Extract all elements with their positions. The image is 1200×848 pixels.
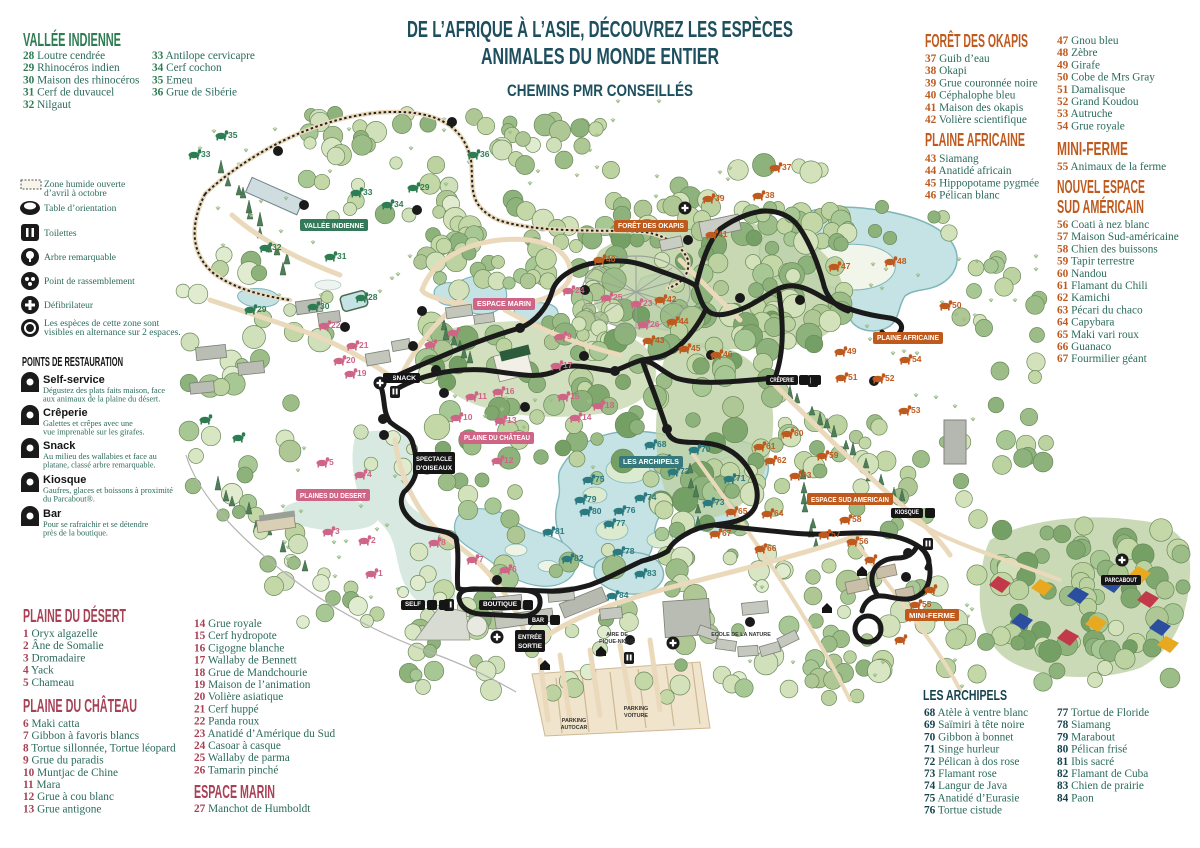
- svg-text:58: 58: [852, 514, 862, 524]
- svg-text:84: 84: [619, 590, 629, 600]
- svg-text:38: 38: [765, 190, 775, 200]
- svg-text:49 Girafe: 49 Girafe: [1057, 59, 1100, 71]
- svg-text:63 Pécari du chaco: 63 Pécari du chaco: [1057, 304, 1143, 316]
- svg-text:37 Guib d’eau: 37 Guib d’eau: [925, 53, 990, 65]
- svg-text:57: 57: [831, 529, 841, 539]
- svg-text:56: 56: [859, 536, 869, 546]
- svg-text:26: 26: [650, 319, 660, 329]
- svg-text:80 Pélican frisé: 80 Pélican frisé: [1057, 744, 1127, 756]
- svg-text:48 Zèbre: 48 Zèbre: [1057, 47, 1097, 59]
- svg-text:Snack: Snack: [43, 440, 76, 452]
- svg-text:45 Hippopotame pygmée: 45 Hippopotame pygmée: [925, 177, 1039, 189]
- svg-text:34: 34: [394, 199, 404, 209]
- svg-text:37: 37: [782, 162, 792, 172]
- svg-text:69 Saïmiri à tête noire: 69 Saïmiri à tête noire: [924, 719, 1024, 731]
- svg-text:36 Grue de Sibérie: 36 Grue de Sibérie: [152, 87, 237, 99]
- svg-text:NOUVEL ESPACE: NOUVEL ESPACE: [1057, 177, 1145, 197]
- svg-text:60: 60: [794, 428, 804, 438]
- svg-text:ANIMALES DU MONDE ENTIER: ANIMALES DU MONDE ENTIER: [481, 43, 719, 69]
- svg-text:9: 9: [567, 331, 572, 341]
- svg-text:5 Chameau: 5 Chameau: [23, 677, 74, 689]
- svg-text:ESPACE MARIN: ESPACE MARIN: [194, 782, 275, 802]
- svg-text:CRÊPERIE: CRÊPERIE: [770, 375, 794, 384]
- svg-text:7 Gibbon à favoris blancs: 7 Gibbon à favoris blancs: [23, 730, 139, 742]
- svg-text:68 Atèle à ventre blanc: 68 Atèle à ventre blanc: [924, 707, 1028, 719]
- svg-text:19: 19: [357, 368, 367, 378]
- svg-text:15: 15: [570, 391, 580, 401]
- svg-text:61 Flamant du Chili: 61 Flamant du Chili: [1057, 280, 1148, 292]
- svg-text:aux animaux de la plaine du dé: aux animaux de la plaine du désert.: [43, 395, 160, 404]
- svg-text:PLAINE AFRICAINE: PLAINE AFRICAINE: [925, 130, 1025, 150]
- svg-text:80: 80: [592, 506, 602, 516]
- svg-text:40: 40: [606, 254, 616, 264]
- svg-text:Point de rassemblement: Point de rassemblement: [44, 277, 135, 287]
- svg-text:78: 78: [625, 546, 635, 556]
- svg-text:47: 47: [841, 261, 851, 271]
- svg-text:74 Langur de Java: 74 Langur de Java: [924, 780, 1007, 792]
- svg-text:SPECTACLE: SPECTACLE: [416, 456, 453, 463]
- svg-text:D'OISEAUX: D'OISEAUX: [416, 465, 453, 472]
- svg-text:33 Antilope cervicapre: 33 Antilope cervicapre: [152, 50, 255, 62]
- svg-text:77: 77: [616, 518, 626, 528]
- svg-text:13 Grue antigone: 13 Grue antigone: [23, 803, 101, 815]
- svg-text:PLAINES DU DESERT: PLAINES DU DESERT: [300, 491, 366, 500]
- svg-text:50: 50: [952, 300, 962, 310]
- svg-text:84 Paon: 84 Paon: [1057, 792, 1094, 804]
- svg-text:d’avril à octobre: d’avril à octobre: [44, 189, 107, 199]
- svg-text:22 Panda roux: 22 Panda roux: [194, 716, 260, 728]
- svg-text:32: 32: [272, 242, 282, 252]
- svg-text:Crêperie: Crêperie: [43, 407, 88, 419]
- svg-text:24: 24: [575, 285, 585, 295]
- svg-text:62: 62: [777, 455, 787, 465]
- svg-text:65 Maki vari roux: 65 Maki vari roux: [1057, 329, 1139, 341]
- svg-text:Toilettes: Toilettes: [44, 229, 77, 239]
- svg-text:Défibrilateur: Défibrilateur: [44, 300, 94, 311]
- svg-text:23 Anatidé d’Amérique du Sud: 23 Anatidé d’Amérique du Sud: [194, 728, 336, 740]
- svg-text:29: 29: [257, 304, 267, 314]
- svg-text:79: 79: [587, 494, 597, 504]
- svg-text:platane, classé arbre remarqua: platane, classé arbre remarquable.: [43, 461, 156, 470]
- svg-text:14 Grue royale: 14 Grue royale: [194, 618, 262, 630]
- svg-text:31 Cerf de duvaucel: 31 Cerf de duvaucel: [23, 87, 114, 99]
- svg-text:52: 52: [885, 373, 895, 383]
- svg-text:67 Fourmilier géant: 67 Fourmilier géant: [1057, 353, 1148, 365]
- svg-text:7: 7: [479, 554, 484, 564]
- svg-text:8 Tortue sillonnée, Tortue léo: 8 Tortue sillonnée, Tortue léopard: [23, 742, 176, 754]
- svg-text:ECOLE DE LA NATURE: ECOLE DE LA NATURE: [711, 632, 771, 638]
- svg-text:SORTIE: SORTIE: [518, 643, 542, 650]
- svg-text:27 Manchot de Humboldt: 27 Manchot de Humboldt: [194, 803, 311, 815]
- svg-text:47 Gnou bleu: 47 Gnou bleu: [1057, 35, 1119, 47]
- svg-text:71: 71: [736, 473, 746, 483]
- svg-text:58 Chien des buissons: 58 Chien des buissons: [1057, 243, 1158, 255]
- svg-text:35 Emeu: 35 Emeu: [152, 74, 193, 86]
- svg-text:39 Grue couronnée noire: 39 Grue couronnée noire: [925, 77, 1038, 89]
- svg-text:81 Ibis sacré: 81 Ibis sacré: [1057, 756, 1114, 768]
- svg-text:48: 48: [897, 256, 907, 266]
- svg-text:SELF: SELF: [405, 601, 421, 608]
- svg-text:29 Rhinocéros indien: 29 Rhinocéros indien: [23, 62, 120, 74]
- svg-text:53 Autruche: 53 Autruche: [1057, 108, 1113, 120]
- svg-text:38 Okapi: 38 Okapi: [925, 65, 967, 77]
- svg-text:83: 83: [647, 568, 657, 578]
- svg-text:66: 66: [767, 543, 777, 553]
- svg-text:73 Flamant rose: 73 Flamant rose: [924, 768, 997, 780]
- svg-text:45: 45: [691, 343, 701, 353]
- svg-text:6: 6: [512, 564, 517, 574]
- svg-text:82 Flamant de Cuba: 82 Flamant de Cuba: [1057, 768, 1148, 780]
- svg-text:79 Marabout: 79 Marabout: [1057, 731, 1116, 743]
- svg-text:14: 14: [582, 412, 592, 422]
- svg-text:74: 74: [647, 492, 657, 502]
- svg-text:Table d’orientation: Table d’orientation: [44, 204, 117, 214]
- svg-text:36: 36: [480, 149, 490, 159]
- svg-text:64: 64: [774, 508, 784, 518]
- svg-text:26 Tamarin pinché: 26 Tamarin pinché: [194, 764, 278, 776]
- svg-text:21: 21: [359, 340, 369, 350]
- svg-text:Self-service: Self-service: [43, 374, 105, 386]
- svg-text:BOUTIQUE: BOUTIQUE: [483, 601, 518, 608]
- svg-text:44: 44: [679, 316, 689, 326]
- svg-text:FORÊT DES OKAPIS: FORÊT DES OKAPIS: [618, 221, 684, 230]
- svg-text:82: 82: [574, 553, 584, 563]
- svg-text:71 Singe hurleur: 71 Singe hurleur: [924, 744, 1000, 756]
- svg-text:72 Pélican à dos rose: 72 Pélican à dos rose: [924, 756, 1019, 768]
- svg-text:76: 76: [626, 505, 636, 515]
- svg-text:39: 39: [715, 193, 725, 203]
- svg-text:PLAINE DU CHÂTEAU: PLAINE DU CHÂTEAU: [23, 695, 137, 716]
- svg-text:du Parcabout®.: du Parcabout®.: [43, 495, 95, 504]
- svg-text:Arbre remarquable: Arbre remarquable: [44, 253, 116, 263]
- svg-text:POINTS DE RESTAURATION: POINTS DE RESTAURATION: [22, 355, 123, 369]
- svg-text:VALLÉE INDIENNE: VALLÉE INDIENNE: [23, 29, 121, 50]
- svg-text:64 Capybara: 64 Capybara: [1057, 317, 1114, 329]
- svg-text:63: 63: [802, 470, 812, 480]
- svg-text:MINI-FERME: MINI-FERME: [909, 611, 955, 620]
- svg-text:MINI-FERME: MINI-FERME: [1057, 139, 1128, 159]
- svg-text:6 Maki catta: 6 Maki catta: [23, 718, 79, 730]
- svg-text:17: 17: [563, 360, 573, 370]
- svg-text:1: 1: [378, 568, 383, 578]
- svg-text:2: 2: [371, 535, 376, 545]
- svg-text:70 Gibbon à bonnet: 70 Gibbon à bonnet: [924, 731, 1014, 743]
- svg-text:AIRE DE: AIRE DE: [606, 632, 628, 638]
- svg-text:20: 20: [346, 355, 356, 365]
- svg-text:43 Siamang: 43 Siamang: [925, 153, 979, 165]
- svg-text:32 Nilgaut: 32 Nilgaut: [23, 99, 72, 111]
- svg-text:SNACK: SNACK: [392, 375, 416, 382]
- svg-text:10: 10: [463, 412, 473, 422]
- svg-text:11 Mara: 11 Mara: [23, 779, 60, 791]
- svg-text:SUD AMÉRICAIN: SUD AMÉRICAIN: [1057, 196, 1144, 217]
- svg-text:55 Animaux de la ferme: 55 Animaux de la ferme: [1057, 161, 1166, 173]
- svg-text:4 Yack: 4 Yack: [23, 665, 54, 677]
- svg-text:42: 42: [667, 294, 677, 304]
- svg-text:33: 33: [363, 187, 373, 197]
- svg-text:Bar: Bar: [43, 508, 62, 520]
- svg-text:28 Loutre cendrée: 28 Loutre cendrée: [23, 50, 105, 62]
- svg-text:CHEMINS PMR CONSEILLÉS: CHEMINS PMR CONSEILLÉS: [507, 81, 693, 100]
- svg-text:BAR: BAR: [532, 617, 544, 624]
- svg-text:54: 54: [912, 354, 922, 364]
- svg-text:29: 29: [420, 182, 430, 192]
- svg-text:18 Grue de Mandchourie: 18 Grue de Mandchourie: [194, 667, 307, 679]
- svg-text:59 Tapir terrestre: 59 Tapir terrestre: [1057, 256, 1134, 268]
- svg-text:18: 18: [605, 400, 615, 410]
- svg-text:KIOSQUE: KIOSQUE: [895, 509, 920, 516]
- svg-text:43: 43: [655, 335, 665, 345]
- svg-text:13: 13: [507, 415, 517, 425]
- svg-text:62 Kamichi: 62 Kamichi: [1057, 292, 1110, 304]
- svg-text:1 Oryx algazelle: 1 Oryx algazelle: [23, 628, 98, 640]
- svg-text:44 Anatidé africain: 44 Anatidé africain: [925, 165, 1012, 177]
- svg-text:81: 81: [555, 526, 565, 536]
- svg-text:5: 5: [329, 457, 334, 467]
- svg-text:4: 4: [367, 469, 372, 479]
- svg-text:75 Anatidé d’Eurasie: 75 Anatidé d’Eurasie: [924, 792, 1019, 804]
- svg-text:Kiosque: Kiosque: [43, 474, 86, 486]
- svg-text:22: 22: [331, 320, 341, 330]
- svg-text:73: 73: [715, 497, 725, 507]
- svg-text:28: 28: [368, 292, 378, 302]
- svg-text:VOITURE: VOITURE: [624, 713, 648, 719]
- svg-text:16: 16: [505, 386, 515, 396]
- svg-text:68: 68: [657, 439, 667, 449]
- svg-text:42 Volière scientifique: 42 Volière scientifique: [925, 114, 1027, 126]
- svg-text:PLAINE DU DÉSERT: PLAINE DU DÉSERT: [23, 605, 126, 626]
- svg-text:67: 67: [722, 528, 732, 538]
- svg-text:41 Maison des okapis: 41 Maison des okapis: [925, 102, 1023, 114]
- svg-text:25 Wallaby de parma: 25 Wallaby de parma: [194, 752, 290, 764]
- svg-text:visibles en alternance sur 2 e: visibles en alternance sur 2 espaces.: [44, 328, 181, 338]
- svg-text:70: 70: [701, 444, 711, 454]
- svg-text:11: 11: [478, 391, 487, 401]
- svg-text:2 Âne de Somalie: 2 Âne de Somalie: [23, 640, 104, 652]
- svg-text:21 Cerf huppé: 21 Cerf huppé: [194, 703, 259, 715]
- svg-text:40 Céphalophe bleu: 40 Céphalophe bleu: [925, 90, 1016, 102]
- svg-text:vue imprenable sur les girafes: vue imprenable sur les girafes.: [43, 428, 145, 437]
- svg-text:DE L’AFRIQUE À L’ASIE, DÉCOUVR: DE L’AFRIQUE À L’ASIE, DÉCOUVREZ LES ESP…: [407, 15, 793, 42]
- svg-text:PARCABOUT: PARCABOUT: [1105, 577, 1137, 584]
- svg-text:57 Maison Sud-américaine: 57 Maison Sud-américaine: [1057, 231, 1179, 243]
- svg-text:56 Coati à nez blanc: 56 Coati à nez blanc: [1057, 219, 1149, 231]
- svg-text:75: 75: [595, 474, 605, 484]
- svg-text:17 Wallaby de Bennett: 17 Wallaby de Bennett: [194, 655, 298, 667]
- svg-text:12: 12: [504, 455, 514, 465]
- svg-text:10 Muntjac de Chine: 10 Muntjac de Chine: [23, 767, 118, 779]
- svg-text:46: 46: [723, 349, 733, 359]
- svg-text:9 Grue du paradis: 9 Grue du paradis: [23, 755, 104, 767]
- svg-text:19 Maison de l’animation: 19 Maison de l’animation: [194, 679, 311, 691]
- svg-text:34 Cerf cochon: 34 Cerf cochon: [152, 62, 222, 74]
- svg-text:3 Dromadaire: 3 Dromadaire: [23, 652, 85, 664]
- svg-text:15 Cerf hydropote: 15 Cerf hydropote: [194, 630, 277, 642]
- svg-text:50 Cobe de Mrs Gray: 50 Cobe de Mrs Gray: [1057, 72, 1155, 84]
- svg-text:30 Maison des rhinocéros: 30 Maison des rhinocéros: [23, 74, 139, 86]
- svg-text:65: 65: [738, 506, 748, 516]
- svg-text:près de la boutique.: près de la boutique.: [43, 529, 108, 538]
- svg-text:16 Cigogne blanche: 16 Cigogne blanche: [194, 642, 284, 654]
- svg-text:20 Volière asiatique: 20 Volière asiatique: [194, 691, 283, 703]
- svg-text:24 Casoar à casque: 24 Casoar à casque: [194, 740, 281, 752]
- svg-text:60 Nandou: 60 Nandou: [1057, 268, 1107, 280]
- svg-text:51 Damalisque: 51 Damalisque: [1057, 84, 1125, 96]
- svg-text:35: 35: [228, 130, 238, 140]
- svg-text:30: 30: [320, 301, 330, 311]
- svg-text:PIQUE-NIQUE: PIQUE-NIQUE: [599, 639, 635, 645]
- svg-text:PARKING: PARKING: [562, 718, 586, 724]
- svg-text:83 Chien de prairie: 83 Chien de prairie: [1057, 780, 1144, 792]
- svg-text:PLAINE AFRICAINE: PLAINE AFRICAINE: [877, 333, 939, 342]
- svg-text:ESPACE MARIN: ESPACE MARIN: [477, 299, 531, 308]
- svg-text:FORÊT DES OKAPIS: FORÊT DES OKAPIS: [925, 30, 1028, 51]
- svg-text:AUTOCAR: AUTOCAR: [561, 725, 588, 731]
- svg-text:51: 51: [848, 372, 858, 382]
- svg-text:61: 61: [766, 441, 776, 451]
- svg-text:LES ARCHIPELS: LES ARCHIPELS: [623, 457, 679, 466]
- svg-text:78 Siamang: 78 Siamang: [1057, 719, 1111, 731]
- svg-text:25: 25: [613, 292, 623, 302]
- svg-text:53: 53: [911, 405, 921, 415]
- svg-text:31: 31: [337, 251, 347, 261]
- svg-text:52 Grand Koudou: 52 Grand Koudou: [1057, 96, 1139, 108]
- svg-text:41: 41: [718, 229, 728, 239]
- svg-text:54 Grue royale: 54 Grue royale: [1057, 120, 1125, 132]
- svg-text:59: 59: [829, 450, 839, 460]
- svg-text:76 Tortue cistude: 76 Tortue cistude: [924, 805, 1002, 817]
- svg-text:PARKING: PARKING: [624, 706, 648, 712]
- svg-text:8: 8: [441, 537, 446, 547]
- svg-text:ENTRÉE: ENTRÉE: [518, 632, 542, 641]
- svg-text:23: 23: [643, 298, 653, 308]
- svg-text:LES ARCHIPELS: LES ARCHIPELS: [923, 687, 1007, 704]
- svg-text:ESPACE SUD AMERICAIN: ESPACE SUD AMERICAIN: [811, 495, 889, 504]
- svg-text:PLAINE DU CHÂTEAU: PLAINE DU CHÂTEAU: [464, 433, 530, 442]
- svg-text:3: 3: [335, 526, 340, 536]
- svg-text:55: 55: [922, 599, 932, 609]
- svg-text:VALLÉE INDIENNE: VALLÉE INDIENNE: [304, 221, 364, 230]
- svg-text:49: 49: [847, 346, 857, 356]
- svg-text:46 Pélican blanc: 46 Pélican blanc: [925, 190, 1000, 202]
- svg-text:77 Tortue de Floride: 77 Tortue de Floride: [1057, 707, 1149, 719]
- svg-text:33: 33: [201, 149, 211, 159]
- svg-text:66 Guanaco: 66 Guanaco: [1057, 341, 1112, 353]
- svg-text:12 Grue à cou blanc: 12 Grue à cou blanc: [23, 791, 114, 803]
